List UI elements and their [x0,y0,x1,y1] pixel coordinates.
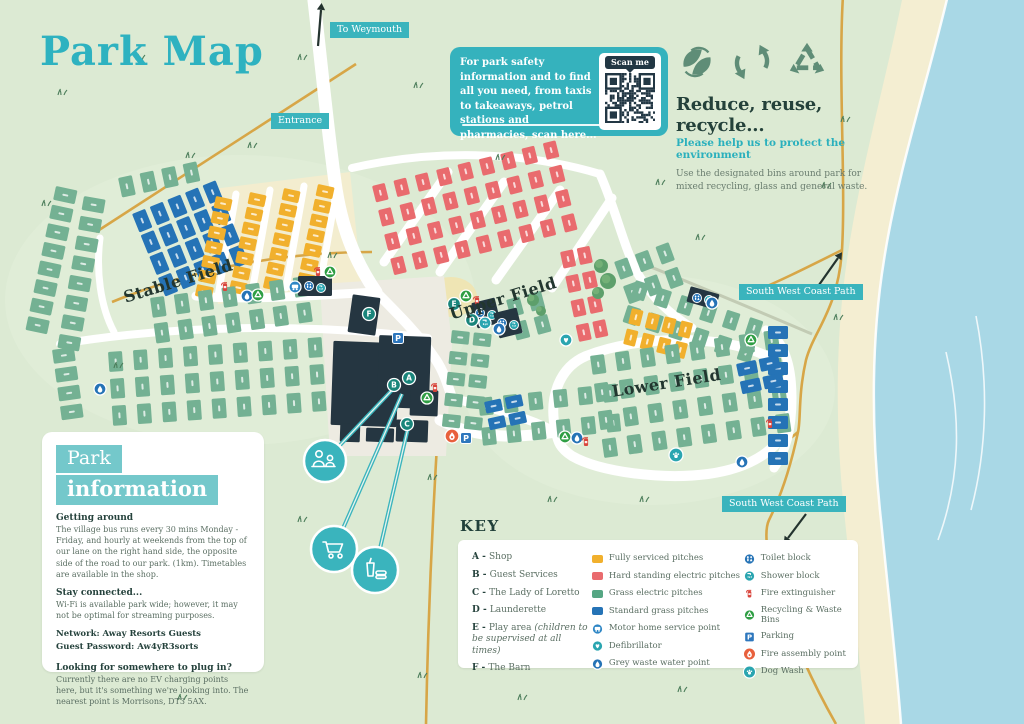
page-title: Park Map [40,28,264,75]
park-information-card: Park information Getting aroundThe villa… [42,432,264,672]
key-pitch-grass-electric-pitches: Grass electric pitches [591,587,743,600]
key-icon-fire-assembly-point: Fire assembly point [743,648,848,661]
leaf-recycle-icon [676,41,718,83]
recycling-icon [745,334,757,346]
qr-panel: For park safety information and to find … [450,47,668,136]
recycle-body: Use the designated bins around park for … [676,168,871,194]
park-info-title-2: information [56,475,218,505]
callout-cart [311,526,357,572]
key-facility-A: A - Shop [472,552,591,563]
greywaste-icon [736,456,748,468]
key-pitches-column: Fully serviced pitchesHard standing elec… [591,552,743,660]
key-facility-D: D - Launderette [472,605,591,616]
recycling-icon [324,266,336,278]
greywaste-icon [241,290,253,302]
key-facilities-column: A - ShopB - Guest ServicesC - The Lady o… [472,552,591,660]
qr-code [602,69,658,127]
greywaste-icon [493,323,505,335]
greywaste-icon [571,432,583,444]
parking-icon: P [393,333,404,344]
key-pitch-grey-waste-water-point: Grey waste water point [591,657,743,670]
recycle-triangle-icon [786,41,828,83]
fireext-icon [746,590,751,597]
info-section-body: The village bus runs every 30 mins Monda… [56,524,250,580]
recycle-icons [676,36,916,88]
key-icon-dog-wash: Dog Wash [743,665,848,678]
qr-code-card: Scan me [599,53,661,130]
key-facility-C: C - The Lady of Loretto [472,588,591,599]
key-facility-B: B - Guest Services [472,570,591,581]
park-info-sections: Getting aroundThe village bus runs every… [56,513,250,707]
key-pitch-standard-grass-pitches: Standard grass pitches [591,605,743,618]
F-icon: F [363,308,376,321]
info-section-heading: Stay connected... [56,588,250,598]
qr-panel-text: For park safety information and to find … [460,56,600,143]
greywaste-icon [706,297,718,309]
circular-arrows-icon [731,41,773,83]
B-icon: B [388,379,401,392]
svg-text:B: B [391,380,397,389]
dogwash-icon [743,666,755,678]
shower-icon [479,317,491,329]
shower-icon [510,321,519,330]
key-icon-shower-block: Shower block [743,570,848,583]
info-section-heading: Getting around [56,513,250,523]
motorhome-icon [289,281,301,293]
motorhome-icon [592,623,602,633]
recycling-icon [421,392,433,404]
qr-underline [462,124,600,126]
callout-people [304,440,346,482]
parking-icon: P [461,433,472,444]
toilet-icon [305,282,314,291]
yellow-pitch-swatch [592,555,603,563]
defib-icon [560,334,572,346]
greywaste-icon [592,658,602,668]
map-label-to-weymouth: To Weymouth [330,22,409,38]
blue-pitch-swatch [592,607,603,615]
building [298,276,332,296]
recycle-panel: Reduce, reuse, recycle... Please help us… [676,36,916,194]
toilet-icon [744,553,754,563]
key-facility-F: F - The Barn [472,663,591,674]
recycling-icon [744,610,754,620]
map-label-south-west-coast-path: South West Coast Path [722,496,846,512]
key-title: KEY [460,517,500,535]
shower-icon [744,571,754,581]
map-label-south-west-coast-path: South West Coast Path [739,284,863,300]
svg-text:P: P [463,434,469,443]
toilet-icon [693,294,702,303]
wifi-credentials: Network: Away Resorts GuestsGuest Passwo… [56,628,250,654]
svg-text:P: P [395,334,401,343]
recycle-subheading: Please help us to protect the environmen… [676,137,916,161]
green-pitch-swatch [592,590,603,598]
key-pitch-fully-serviced-pitches: Fully serviced pitches [591,552,743,565]
key-pitch-defibrillator: Defibrillator [591,640,743,653]
key-icons-column: Toilet blockShower blockFire extinguishe… [743,552,848,660]
qr-code-image [605,73,655,123]
key-legend: A - ShopB - Guest ServicesC - The Lady o… [458,540,858,668]
scan-me-badge: Scan me [605,56,655,69]
fireassembly-icon [743,648,755,660]
parking-icon: P [745,632,755,642]
info-section-body: Currently there are no EV charging point… [56,674,250,708]
svg-text:P: P [747,633,752,641]
A-icon: A [403,372,416,385]
greywaste-icon [94,383,106,395]
key-facility-E: E - Play area (children to be supervised… [472,623,591,657]
key-icon-fire-extinguisher: Fire extinguisher [743,587,848,600]
key-pitch-hard-standing-electric-pitches: Hard standing electric pitches [591,570,743,583]
pitch-cluster-green [108,337,327,426]
park-info-title-1: Park [56,445,122,473]
fireassembly-icon [445,429,459,443]
key-pitch-motor-home-service-point: Motor home service point [591,622,743,635]
C-icon: C [401,418,414,431]
recycling-icon [559,431,571,443]
key-icon-recycling-waste-bins: Recycling & Waste Bins [743,605,848,626]
svg-text:C: C [404,419,410,428]
key-icon-toilet-block: Toilet block [743,552,848,565]
dogwash-icon [669,448,683,462]
defib-icon [592,641,602,651]
red-pitch-swatch [592,572,603,580]
recycle-heading: Reduce, reuse, recycle... [676,94,916,136]
callout-drink [352,547,398,593]
svg-text:A: A [406,373,412,382]
map-label-entrance: Entrance [271,113,329,129]
svg-text:F: F [366,309,371,318]
key-icon-parking: PParking [743,630,848,643]
shower-icon [317,284,326,293]
park-map-page: FPBACPED Park Map For park safety inform… [0,0,1024,724]
info-section-body: Wi-Fi is available park wide; however, i… [56,599,250,621]
recycling-icon [252,289,264,301]
info-section-heading: Looking for somewhere to plug in? [56,663,250,673]
